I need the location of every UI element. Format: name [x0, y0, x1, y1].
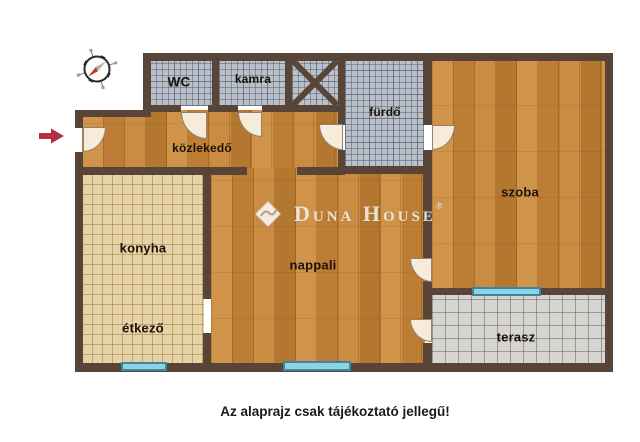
wall-segment [423, 150, 432, 258]
wall-segment [338, 60, 345, 125]
wall-segment [203, 333, 211, 364]
floor-plan: WC kamra fürdő közlekedő konyha étkező n… [0, 0, 640, 442]
wall-segment [208, 105, 238, 112]
wall-segment [143, 105, 181, 112]
label-kozlekedo: közlekedő [172, 141, 232, 155]
floor-kozlekedo [82, 110, 343, 170]
wall-segment [75, 110, 150, 117]
wall-segment [203, 173, 211, 299]
window-terasz [472, 287, 541, 296]
window-konyha [121, 362, 167, 371]
disclaimer-text: Az alaprajz csak tájékoztató jellegű! [220, 404, 450, 419]
floor-konyha-etkezo [82, 169, 204, 365]
label-wc: WC [168, 75, 191, 90]
window-nappali [283, 361, 351, 371]
compass-rose-icon [74, 46, 120, 92]
label-kamra: kamra [235, 72, 271, 86]
wall-segment [432, 288, 473, 295]
label-nappali: nappali [290, 258, 337, 273]
wall-segment [423, 281, 432, 319]
floor-szoba [432, 60, 607, 290]
wall-segment [540, 288, 605, 295]
wall-segment [262, 105, 338, 112]
label-terasz: terasz [497, 330, 536, 345]
wall-segment [423, 343, 432, 364]
shaft-cross-icon [292, 60, 338, 106]
label-konyha: konyha [120, 241, 167, 256]
wall-segment [605, 53, 613, 371]
wall-segment [423, 60, 432, 125]
label-szoba: szoba [501, 185, 539, 200]
label-furdo: fürdő [369, 105, 401, 119]
wall-segment [75, 167, 247, 175]
wall-segment [75, 152, 83, 364]
wall-segment [338, 166, 432, 174]
entrance-arrow-icon [37, 126, 67, 146]
label-etkezo: étkező [122, 321, 164, 336]
